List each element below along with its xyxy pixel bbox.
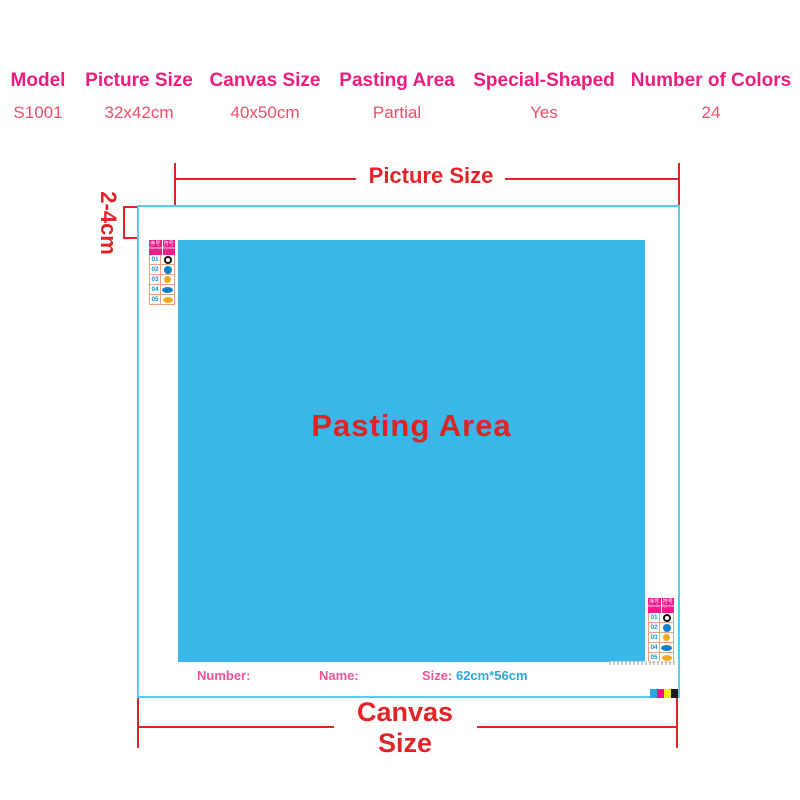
canvas-size-line-left — [139, 726, 334, 728]
legend-header-number-en: Number — [149, 245, 162, 250]
legend-header-symbol-en: Symbol — [662, 603, 675, 608]
legend-symbol-cell — [660, 614, 673, 622]
legend-header: 序号 Number 符号 Symbol — [648, 598, 674, 613]
legend-symbol-cell — [161, 256, 174, 264]
spec-header-model: Model — [0, 70, 76, 92]
size-value: 62cm*56cm — [456, 668, 528, 683]
spec-header-number-of-colors: Number of Colors — [622, 70, 800, 92]
legend-header-symbol: 符号 Symbol — [163, 240, 176, 255]
legend-row: 04 — [149, 285, 175, 295]
canvas-size-line-right — [477, 726, 677, 728]
legend-row: 03 — [648, 633, 674, 643]
picture-size-dimension-label: Picture Size — [352, 163, 510, 189]
legend-row: 02 — [149, 265, 175, 275]
legend-num: 02 — [150, 265, 161, 274]
spec-header-pasting-area: Pasting Area — [328, 70, 466, 92]
legend-symbol-cell — [660, 655, 673, 661]
orange-circle-icon — [164, 276, 171, 283]
magenta-bar — [657, 689, 664, 698]
blue-circle-icon — [663, 624, 671, 632]
legend-symbol-cell — [161, 297, 174, 303]
legend-num: 01 — [649, 613, 660, 622]
legend-num: 01 — [150, 255, 161, 264]
canvas-sheet: Pasting Area 序号 Number 符号 Symbol 01 02 — [137, 205, 680, 698]
legend-symbol-cell — [161, 276, 174, 283]
spec-value-special-shaped: Yes — [466, 103, 622, 123]
legend-symbol-cell — [660, 634, 673, 641]
legend-header-number: 序号 Number — [149, 240, 162, 255]
canvas-size-dimension-label: Canvas Size — [335, 697, 475, 759]
spec-value-pasting-area: Partial — [328, 103, 466, 123]
spec-value-picture-size: 32x42cm — [76, 103, 202, 123]
legend-num: 03 — [150, 275, 161, 284]
fine-print-text — [609, 661, 675, 665]
canvas-footer: Number: Name: Size: 62cm*56cm — [139, 668, 678, 684]
spec-value-number-of-colors: 24 — [622, 103, 800, 123]
spec-header-canvas-size: Canvas Size — [202, 70, 328, 92]
legend-row: 03 — [149, 275, 175, 285]
orange-circle-icon — [663, 634, 670, 641]
margin-bracket-line — [123, 206, 125, 239]
orange-oval-icon — [662, 655, 672, 661]
spec-header-special-shaped: Special-Shaped — [466, 70, 622, 92]
legend-symbol-cell — [161, 266, 174, 274]
spec-table: Model Picture Size Canvas Size Pasting A… — [0, 70, 800, 123]
legend-header-number: 序号 Number — [648, 598, 661, 613]
canvas-size-tick-right — [676, 698, 678, 748]
orange-oval-icon — [163, 297, 173, 303]
name-label: Name: — [319, 668, 359, 683]
legend-header-symbol: 符号 Symbol — [662, 598, 675, 613]
black-donut-icon — [663, 614, 671, 622]
legend-num: 04 — [649, 643, 660, 652]
pasting-area: Pasting Area — [178, 240, 645, 662]
canvas-size-tick-left — [137, 698, 139, 748]
legend-header-symbol-en: Symbol — [163, 245, 176, 250]
cyan-bar — [650, 689, 657, 698]
legend-num: 03 — [649, 633, 660, 642]
black-bar — [671, 689, 678, 698]
black-donut-icon — [164, 256, 172, 264]
legend-row: 01 — [149, 255, 175, 265]
pasting-area-label: Pasting Area — [178, 408, 645, 444]
cmyk-print-bars — [650, 689, 678, 698]
blue-circle-icon — [164, 266, 172, 274]
blue-oval-icon — [661, 645, 672, 651]
spec-header-picture-size: Picture Size — [76, 70, 202, 92]
blue-oval-icon — [162, 287, 173, 293]
legend-header: 序号 Number 符号 Symbol — [149, 240, 175, 255]
margin-dimension-label: 2-4cm — [97, 190, 121, 256]
legend-header-number-en: Number — [648, 603, 661, 608]
spec-value-canvas-size: 40x50cm — [202, 103, 328, 123]
color-legend-bottom-right: 序号 Number 符号 Symbol 01 02 03 — [648, 598, 674, 663]
legend-symbol-cell — [161, 287, 174, 293]
legend-row: 02 — [648, 623, 674, 633]
spec-table-value-row: S1001 32x42cm 40x50cm Partial Yes 24 — [0, 103, 800, 123]
picture-size-line-right — [505, 178, 679, 180]
number-label: Number: — [197, 668, 250, 683]
color-legend-top-left: 序号 Number 符号 Symbol 01 02 03 — [149, 240, 175, 305]
product-spec-diagram: Model Picture Size Canvas Size Pasting A… — [0, 0, 800, 800]
legend-row: 01 — [648, 613, 674, 623]
legend-row: 05 — [149, 295, 175, 305]
legend-num: 04 — [150, 285, 161, 294]
legend-symbol-cell — [660, 645, 673, 651]
legend-num: 02 — [649, 623, 660, 632]
spec-value-model: S1001 — [0, 103, 76, 123]
size-label: Size: — [422, 668, 452, 683]
legend-row: 04 — [648, 643, 674, 653]
yellow-bar — [664, 689, 671, 698]
legend-symbol-cell — [660, 624, 673, 632]
picture-size-line-left — [175, 178, 356, 180]
legend-num: 05 — [150, 295, 161, 304]
spec-table-header-row: Model Picture Size Canvas Size Pasting A… — [0, 70, 800, 92]
size-label-group: Size: 62cm*56cm — [422, 668, 528, 683]
